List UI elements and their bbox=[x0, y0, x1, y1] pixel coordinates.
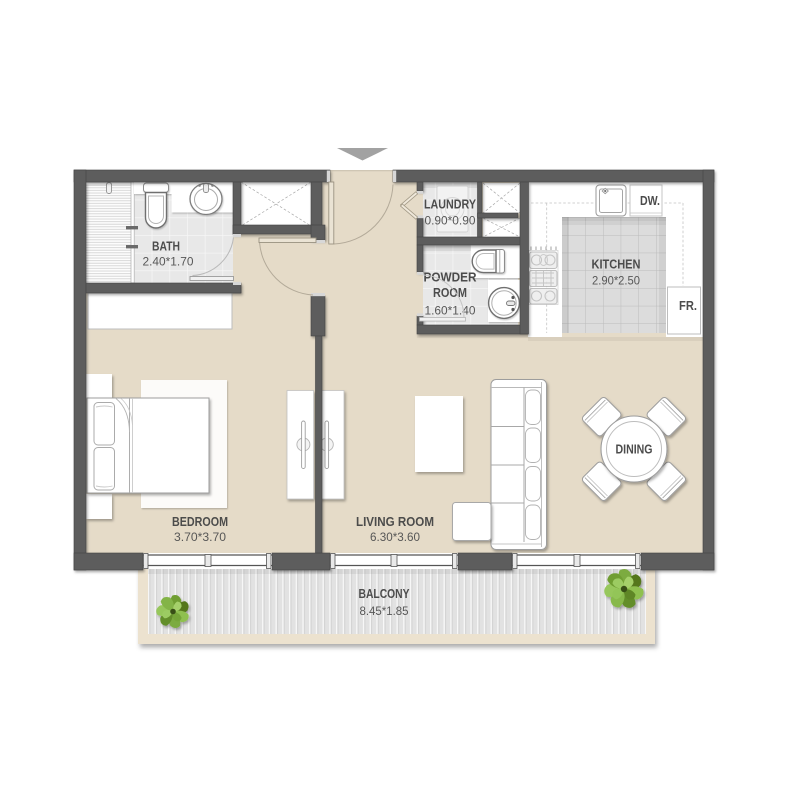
svg-text:LIVING ROOM: LIVING ROOM bbox=[356, 515, 434, 529]
svg-text:6.30*3.60: 6.30*3.60 bbox=[370, 530, 420, 544]
svg-text:2.90*2.50: 2.90*2.50 bbox=[592, 274, 640, 288]
svg-text:2.40*1.70: 2.40*1.70 bbox=[143, 255, 194, 269]
svg-text:3.70*3.70: 3.70*3.70 bbox=[174, 530, 226, 544]
svg-text:FR.: FR. bbox=[679, 299, 697, 313]
svg-text:1.60*1.40: 1.60*1.40 bbox=[425, 304, 476, 318]
svg-text:BALCONY: BALCONY bbox=[359, 587, 411, 601]
svg-text:DINING: DINING bbox=[616, 443, 653, 457]
svg-text:KITCHEN: KITCHEN bbox=[592, 258, 641, 272]
svg-text:LAUNDRY: LAUNDRY bbox=[424, 198, 477, 212]
svg-text:8.45*1.85: 8.45*1.85 bbox=[360, 604, 409, 618]
svg-text:POWDER: POWDER bbox=[424, 271, 477, 285]
svg-text:ROOM: ROOM bbox=[433, 286, 467, 300]
svg-text:0.90*0.90: 0.90*0.90 bbox=[425, 214, 476, 228]
svg-text:BATH: BATH bbox=[152, 240, 180, 254]
svg-text:BEDROOM: BEDROOM bbox=[172, 515, 228, 529]
svg-text:DW.: DW. bbox=[640, 194, 660, 208]
